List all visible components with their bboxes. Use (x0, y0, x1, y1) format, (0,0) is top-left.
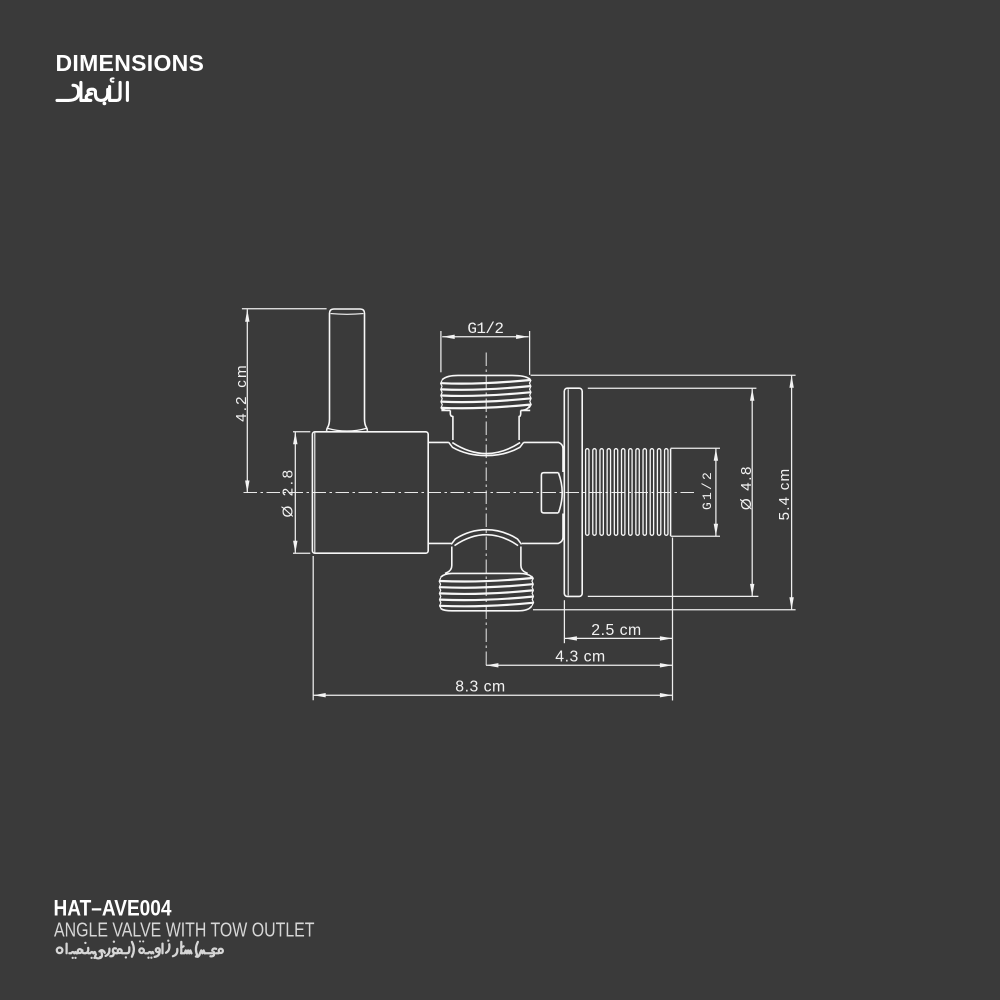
svg-text:Ø 2.8: Ø 2.8 (280, 467, 297, 517)
svg-text:4.2 cm: 4.2 cm (233, 363, 250, 422)
svg-text:5.4 cm: 5.4 cm (776, 468, 793, 521)
svg-text:G1/2: G1/2 (700, 470, 715, 510)
svg-text:ANGLE VALVE WITH TOW OUTLET: ANGLE VALVE WITH TOW OUTLET (54, 920, 315, 942)
svg-text:DIMENSIONS: DIMENSIONS (56, 50, 205, 76)
svg-text:4.3 cm: 4.3 cm (555, 649, 605, 666)
svg-text:G1/2: G1/2 (467, 320, 503, 338)
svg-text:Ø 4.8: Ø 4.8 (738, 465, 755, 510)
svg-text:HAT–AVE004: HAT–AVE004 (54, 896, 173, 921)
svg-text:8.3 cm: 8.3 cm (455, 679, 505, 696)
svg-text:2.5 cm: 2.5 cm (591, 622, 641, 639)
